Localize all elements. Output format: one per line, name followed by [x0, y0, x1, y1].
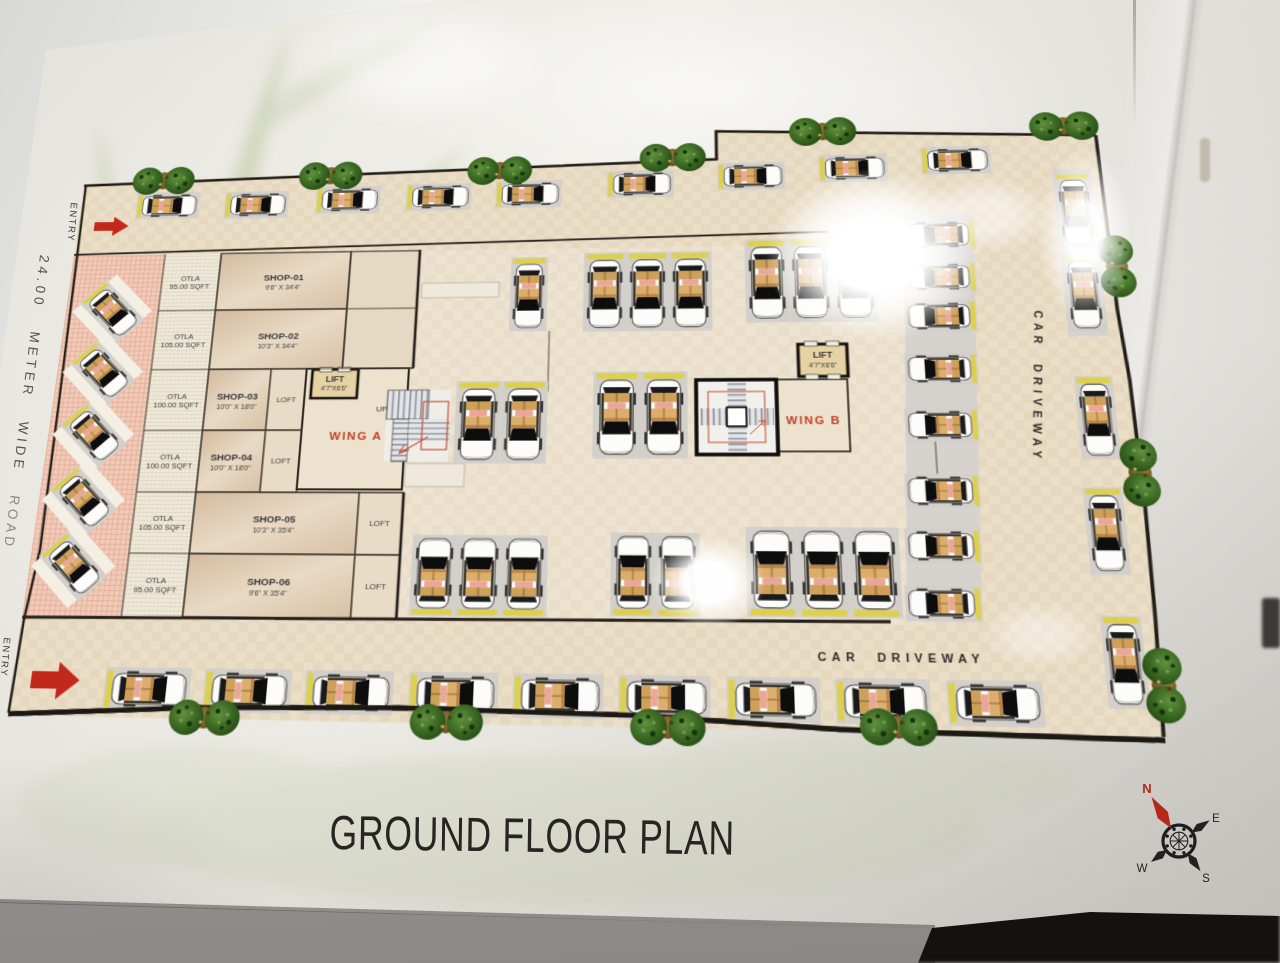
svg-text:9'6" X 35'4": 9'6" X 35'4"	[248, 591, 287, 599]
svg-text:CAR DRIVEWAY: CAR DRIVEWAY	[817, 650, 985, 665]
svg-text:SHOP-01: SHOP-01	[263, 273, 305, 283]
svg-text:CAR DRIVEWAY: CAR DRIVEWAY	[1029, 310, 1045, 464]
svg-text:SHOP-03: SHOP-03	[216, 392, 259, 402]
svg-text:UP: UP	[376, 406, 387, 414]
svg-text:105.00 SQFT: 105.00 SQFT	[160, 342, 205, 350]
svg-text:LIFT: LIFT	[813, 350, 834, 360]
svg-text:N: N	[1142, 781, 1151, 796]
svg-text:SHOP-06: SHOP-06	[247, 577, 292, 588]
svg-text:LIFT: LIFT	[325, 374, 345, 384]
svg-text:WING B: WING B	[786, 415, 842, 428]
svg-text:OTLA: OTLA	[180, 276, 201, 284]
svg-text:W: W	[1137, 863, 1148, 875]
svg-text:9'6" X 34'4": 9'6" X 34'4"	[265, 285, 301, 292]
svg-text:4'7"X6'6": 4'7"X6'6"	[809, 363, 838, 370]
svg-text:10'0" X 18'0": 10'0" X 18'0"	[216, 405, 257, 412]
svg-text:95.00 SQFT: 95.00 SQFT	[133, 587, 177, 596]
svg-text:LOFT: LOFT	[276, 397, 296, 405]
svg-text:SHOP-02: SHOP-02	[258, 331, 300, 341]
svg-text:SHOP-05: SHOP-05	[252, 515, 296, 526]
svg-text:OTLA: OTLA	[159, 454, 181, 462]
svg-text:100.00 SQFT: 100.00 SQFT	[146, 463, 193, 471]
svg-text:105.00 SQFT: 105.00 SQFT	[138, 525, 185, 533]
svg-text:S: S	[1202, 873, 1210, 885]
svg-text:OTLA: OTLA	[152, 516, 174, 524]
svg-text:10'0" X 18'0": 10'0" X 18'0"	[209, 466, 250, 473]
svg-text:LOFT: LOFT	[369, 521, 390, 529]
svg-text:E: E	[1212, 813, 1220, 825]
svg-text:4'7"X6'6": 4'7"X6'6"	[321, 386, 348, 393]
svg-text:95.00 SQFT: 95.00 SQFT	[169, 284, 210, 292]
svg-text:LOFT: LOFT	[271, 458, 292, 466]
svg-text:OTLA: OTLA	[174, 333, 195, 341]
svg-text:10'3" X 35'4": 10'3" X 35'4"	[252, 528, 294, 535]
svg-text:SHOP-04: SHOP-04	[210, 453, 253, 463]
svg-text:WING A: WING A	[329, 431, 383, 444]
svg-text:OTLA: OTLA	[145, 578, 167, 587]
svg-text:OTLA: OTLA	[167, 393, 188, 401]
svg-text:LOFT: LOFT	[365, 584, 386, 593]
svg-text:100.00 SQFT: 100.00 SQFT	[153, 402, 199, 410]
svg-text:10'3" X 34'4": 10'3" X 34'4"	[257, 344, 297, 351]
